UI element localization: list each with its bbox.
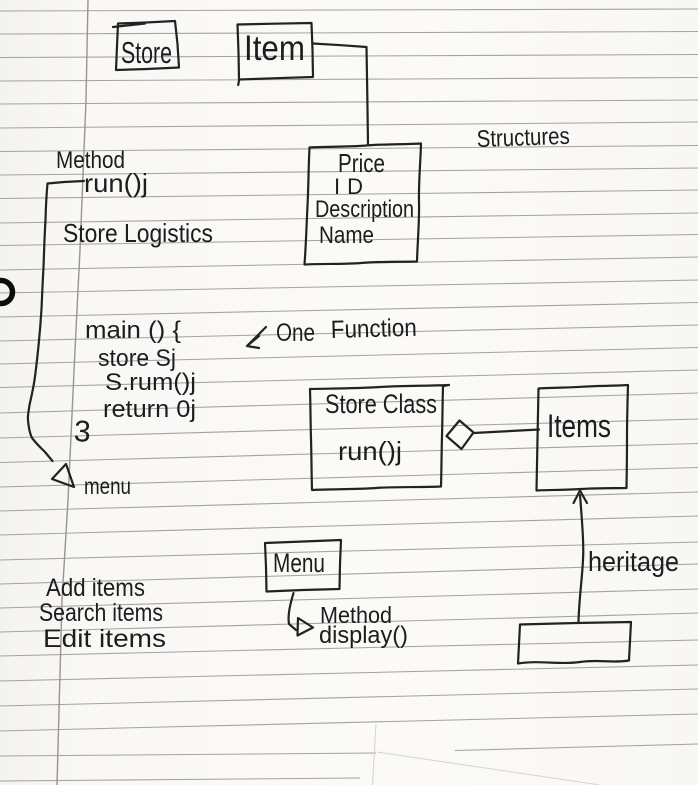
svg-text:Structures: Structures: [476, 123, 570, 153]
svg-text:S.rum()j: S.rum()j: [105, 369, 196, 396]
svg-text:Store: Store: [121, 35, 172, 70]
svg-text:menu: menu: [84, 473, 131, 499]
svg-text:display(): display(): [319, 622, 408, 649]
svg-text:Function: Function: [330, 314, 417, 344]
svg-text:Edit items: Edit items: [43, 625, 166, 653]
svg-text:3: 3: [73, 415, 91, 449]
svg-text:Search items: Search items: [39, 599, 163, 627]
svg-text:Store Logistics: Store Logistics: [63, 218, 213, 248]
svg-text:Menu: Menu: [273, 548, 325, 578]
svg-text:return 0j: return 0j: [103, 396, 196, 423]
svg-text:Item: Item: [244, 29, 305, 68]
svg-text:Store Class: Store Class: [325, 389, 437, 419]
svg-text:heritage: heritage: [588, 546, 679, 577]
svg-text:store Sj: store Sj: [98, 345, 176, 372]
svg-text:main () {: main () {: [85, 317, 181, 344]
svg-text:Name: Name: [319, 222, 374, 249]
svg-text:One: One: [276, 319, 315, 347]
svg-text:Description: Description: [315, 196, 414, 223]
svg-text:run()j: run()j: [84, 168, 148, 198]
svg-text:Items: Items: [547, 408, 611, 444]
svg-text:run()j: run()j: [338, 436, 402, 466]
svg-text:Add items: Add items: [46, 574, 145, 602]
